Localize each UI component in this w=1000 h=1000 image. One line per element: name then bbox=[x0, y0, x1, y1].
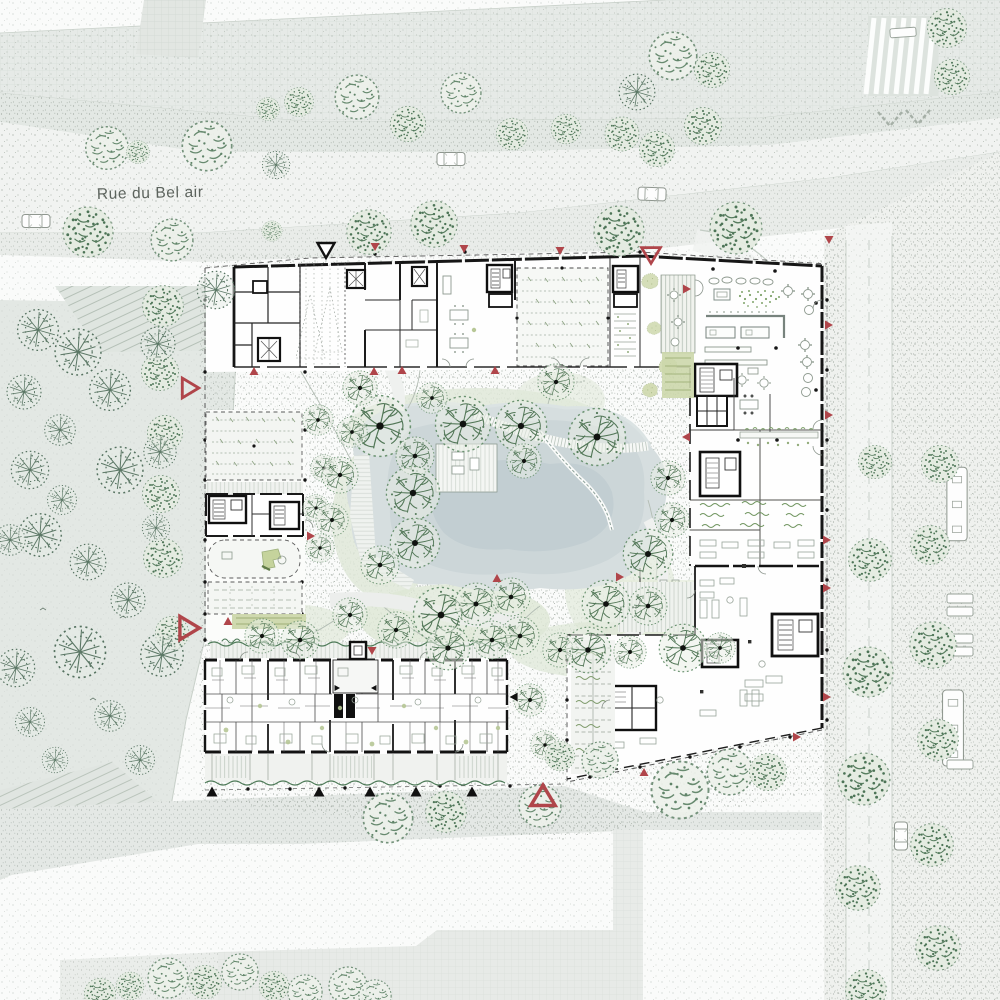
svg-text:Rue du Bel air: Rue du Bel air bbox=[97, 184, 204, 203]
